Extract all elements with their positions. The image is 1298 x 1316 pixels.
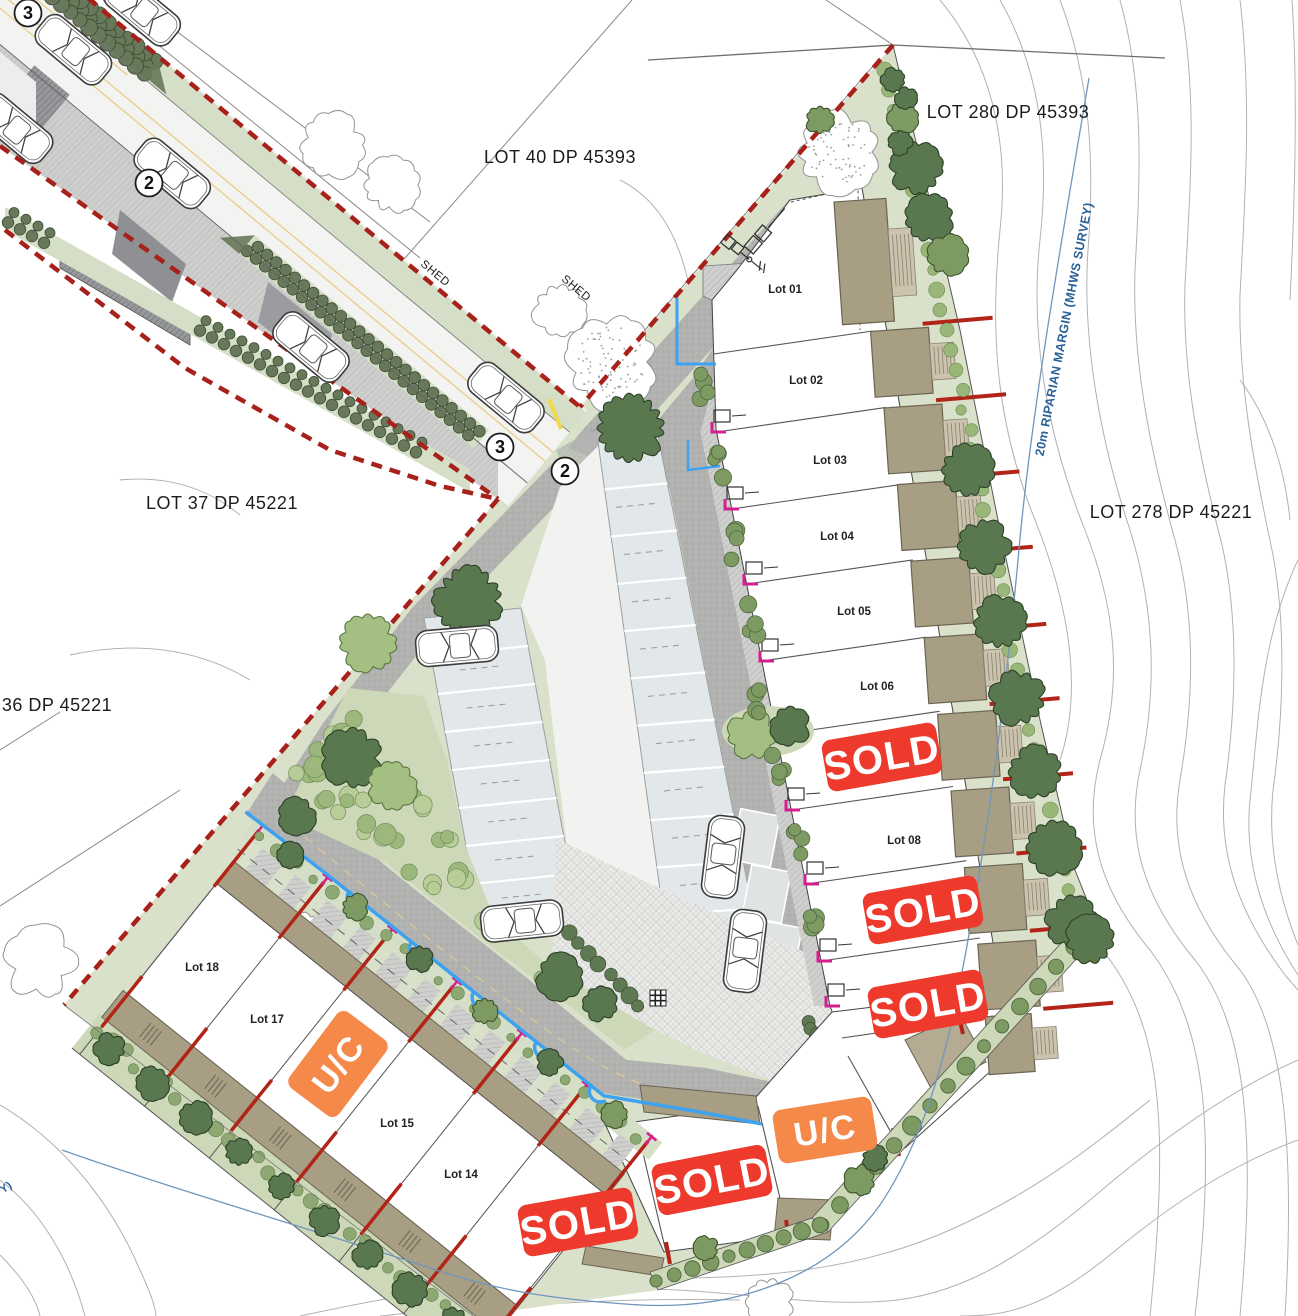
svg-text:Lot 02: Lot 02 xyxy=(789,375,823,387)
svg-text:2: 2 xyxy=(560,461,570,481)
svg-text:LOT 280 DP 45393: LOT 280 DP 45393 xyxy=(927,102,1089,122)
svg-text:Lot 14: Lot 14 xyxy=(444,1169,478,1181)
svg-text:LOT 278 DP 45221: LOT 278 DP 45221 xyxy=(1090,502,1252,522)
svg-text:Lot 03: Lot 03 xyxy=(813,455,847,467)
svg-text:2: 2 xyxy=(144,173,154,193)
svg-text:3: 3 xyxy=(495,437,505,457)
svg-text:Lot 05: Lot 05 xyxy=(837,606,871,618)
svg-text:Lot 18: Lot 18 xyxy=(185,962,219,974)
svg-text:Lot 08: Lot 08 xyxy=(887,835,921,847)
svg-text:Lot 04: Lot 04 xyxy=(820,531,854,543)
svg-text:Lot 01: Lot 01 xyxy=(768,284,802,296)
svg-text:Lot 17: Lot 17 xyxy=(250,1014,284,1026)
svg-text:LOT 40 DP 45393: LOT 40 DP 45393 xyxy=(484,147,636,167)
svg-text:Lot 15: Lot 15 xyxy=(380,1118,414,1130)
svg-text:LOT 37 DP 45221: LOT 37 DP 45221 xyxy=(146,493,298,513)
svg-text:3: 3 xyxy=(23,3,33,23)
svg-text:Lot 06: Lot 06 xyxy=(860,681,894,693)
svg-text:36 DP 45221: 36 DP 45221 xyxy=(2,695,112,715)
